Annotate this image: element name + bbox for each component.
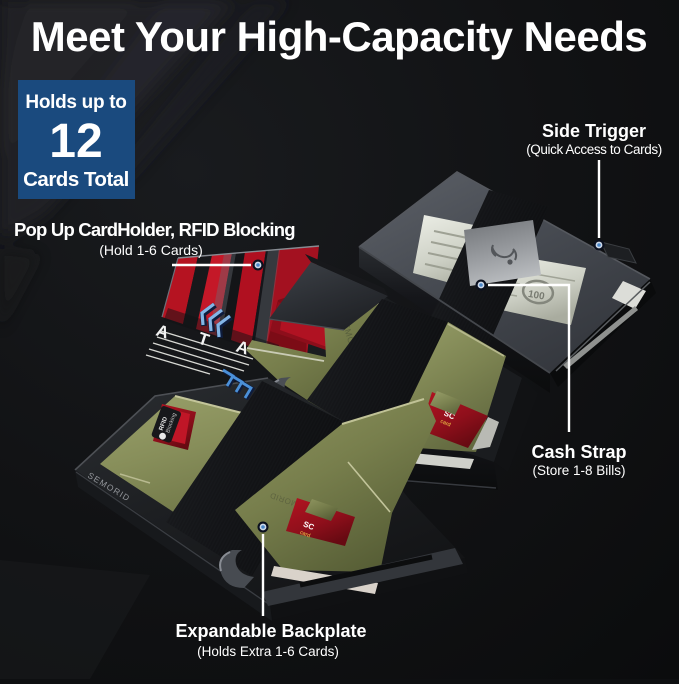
svg-text:Expandable Backplate: Expandable Backplate [175, 621, 366, 641]
svg-text:Cash Strap: Cash Strap [531, 442, 626, 462]
svg-text:12: 12 [49, 115, 102, 168]
svg-text:Side Trigger: Side Trigger [542, 121, 646, 141]
svg-text:Meet Your High-Capacity Needs: Meet Your High-Capacity Needs [31, 13, 647, 60]
svg-text:Pop Up CardHolder, RFID Blocki: Pop Up CardHolder, RFID Blocking [14, 219, 295, 240]
svg-text:Holds up to: Holds up to [25, 92, 126, 113]
svg-text:(Quick Access to Cards): (Quick Access to Cards) [526, 142, 662, 157]
svg-text:Cards Total: Cards Total [23, 168, 129, 191]
svg-text:(Holds Extra 1-6 Cards): (Holds Extra 1-6 Cards) [197, 644, 339, 659]
svg-text:(Hold 1-6 Cards): (Hold 1-6 Cards) [99, 242, 202, 258]
svg-text:(Store 1-8 Bills): (Store 1-8 Bills) [532, 463, 625, 478]
